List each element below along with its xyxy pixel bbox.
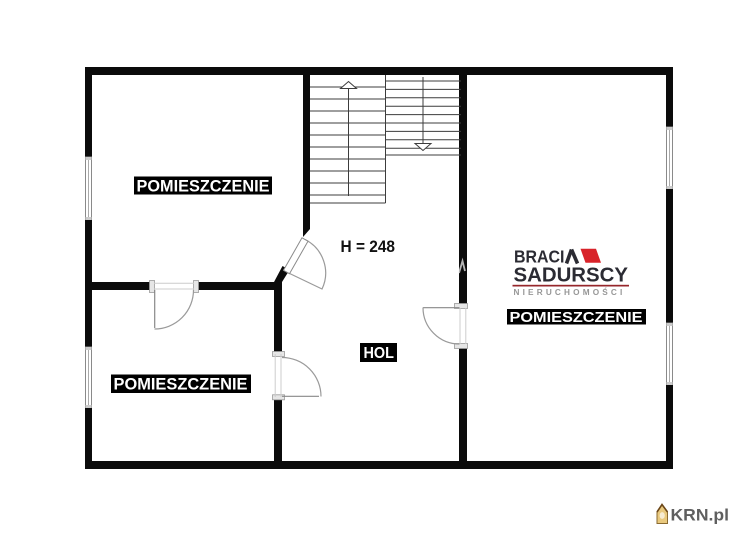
svg-text:H = 248: H = 248 bbox=[341, 238, 396, 256]
svg-text:POMIESZCZENIE: POMIESZCZENIE bbox=[114, 376, 248, 394]
svg-text:NIERUCHOMOŚCI: NIERUCHOMOŚCI bbox=[514, 288, 626, 297]
svg-text:SADURSCY: SADURSCY bbox=[514, 263, 629, 286]
svg-text:POMIESZCZENIE: POMIESZCZENIE bbox=[137, 178, 270, 196]
svg-text:KRN.pl: KRN.pl bbox=[671, 506, 730, 525]
svg-text:HOL: HOL bbox=[364, 345, 395, 362]
svg-text:POMIESZCZENIE: POMIESZCZENIE bbox=[510, 310, 643, 326]
